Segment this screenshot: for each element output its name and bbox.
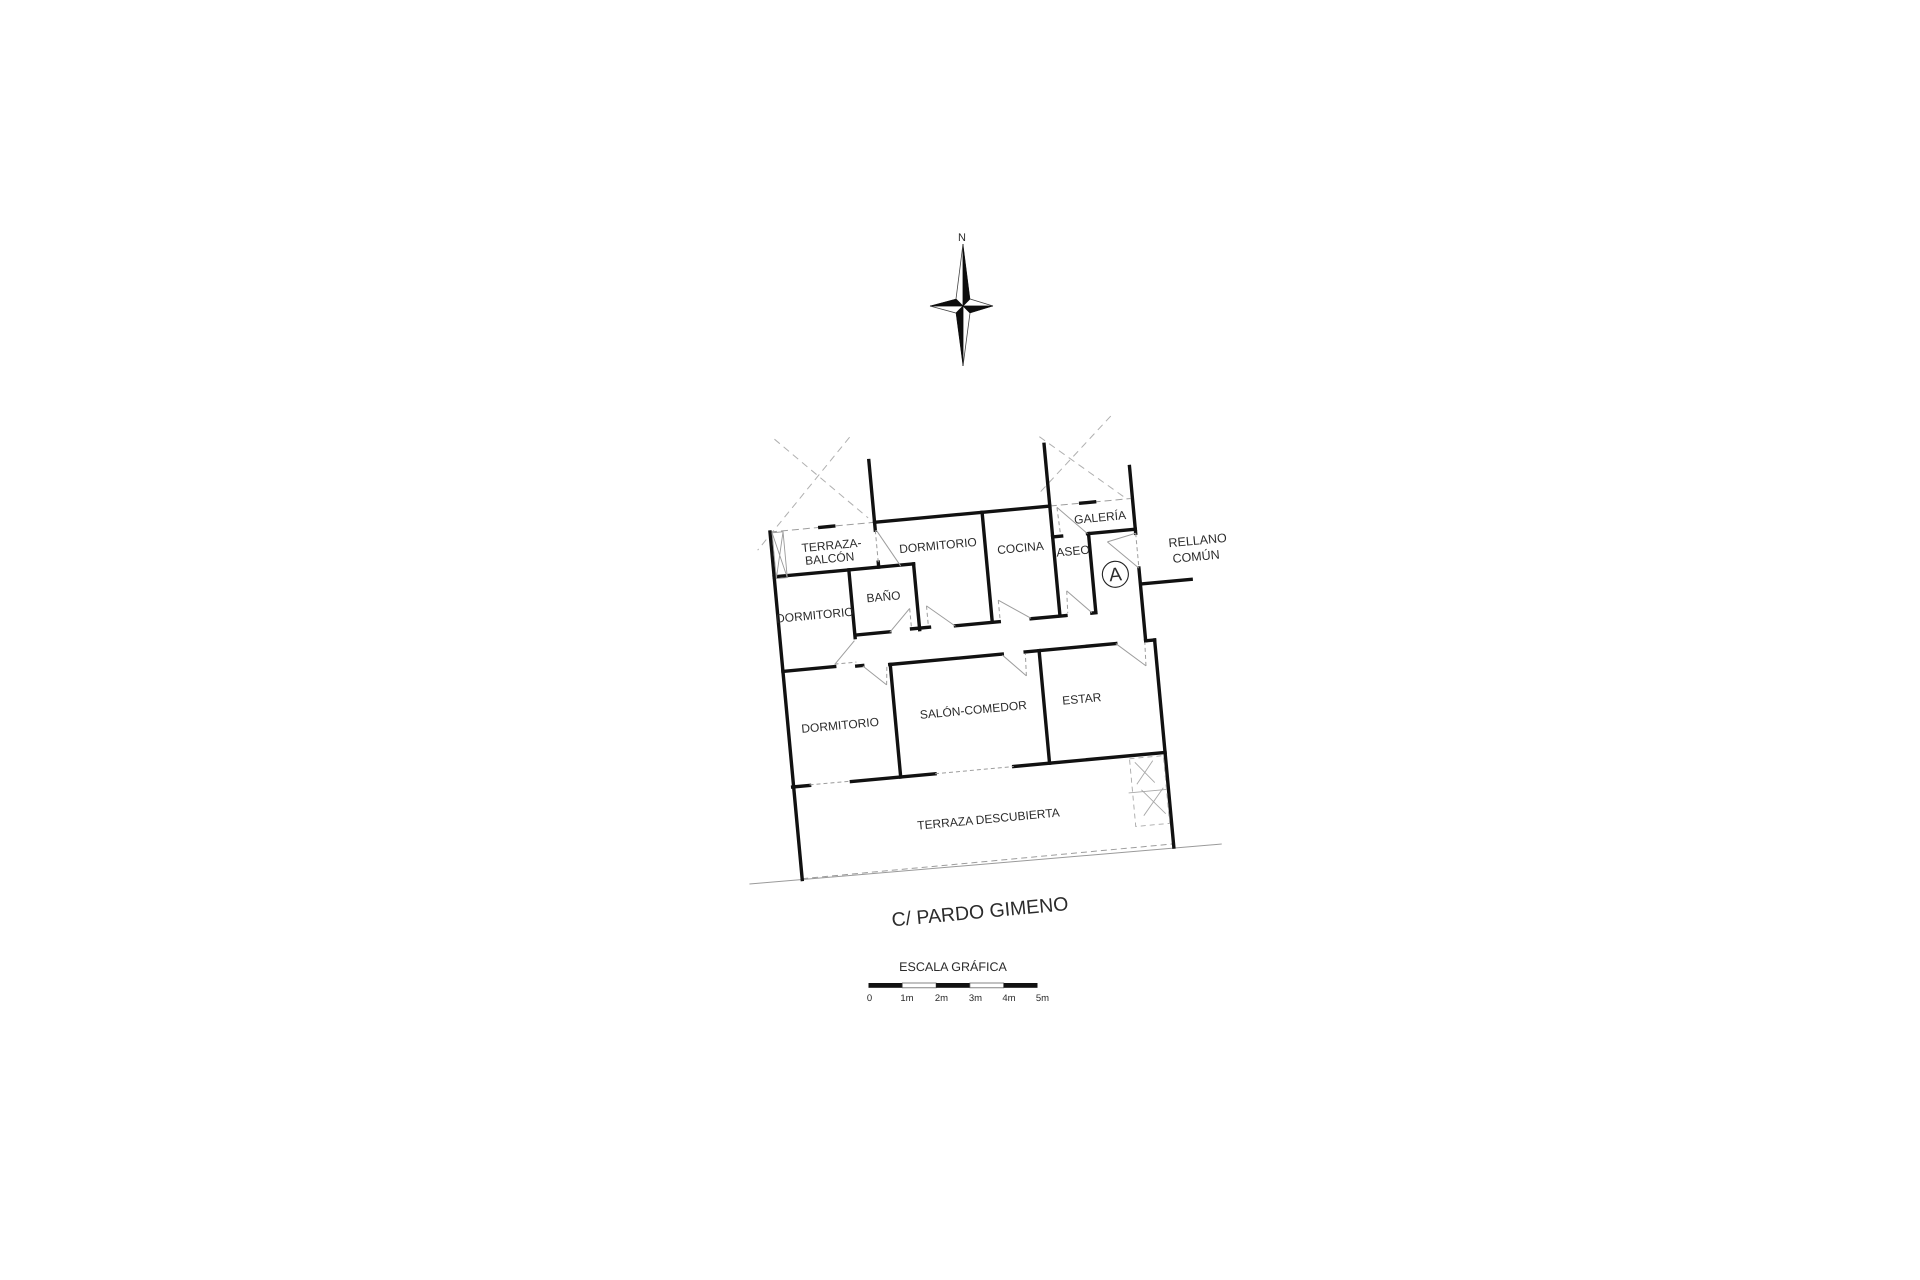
- svg-text:0: 0: [867, 993, 872, 1004]
- svg-text:TERRAZA DESCUBIERTA: TERRAZA DESCUBIERTA: [917, 805, 1061, 832]
- svg-text:COMÚN: COMÚN: [1172, 548, 1220, 566]
- svg-text:2m: 2m: [935, 993, 948, 1004]
- svg-text:1m: 1m: [900, 993, 913, 1004]
- svg-text:SALÓN-COMEDOR: SALÓN-COMEDOR: [919, 698, 1028, 722]
- svg-text:4m: 4m: [1002, 993, 1015, 1004]
- svg-text:GALERÍA: GALERÍA: [1074, 508, 1127, 527]
- svg-text:COCINA: COCINA: [997, 539, 1045, 557]
- svg-text:ESCALA GRÁFICA: ESCALA GRÁFICA: [899, 960, 1007, 974]
- svg-text:DORMITORIO: DORMITORIO: [776, 605, 855, 626]
- svg-text:ASEO: ASEO: [1056, 543, 1091, 560]
- svg-text:DORMITORIO: DORMITORIO: [801, 715, 880, 736]
- svg-text:ESTAR: ESTAR: [1062, 690, 1103, 708]
- svg-text:DORMITORIO: DORMITORIO: [899, 535, 978, 556]
- svg-text:A: A: [1108, 564, 1123, 586]
- svg-text:BAÑO: BAÑO: [866, 588, 901, 605]
- svg-text:C/ PARDO GIMENO: C/ PARDO GIMENO: [891, 893, 1070, 931]
- svg-text:5m: 5m: [1036, 993, 1049, 1004]
- svg-text:N: N: [958, 232, 966, 244]
- svg-text:3m: 3m: [969, 993, 982, 1004]
